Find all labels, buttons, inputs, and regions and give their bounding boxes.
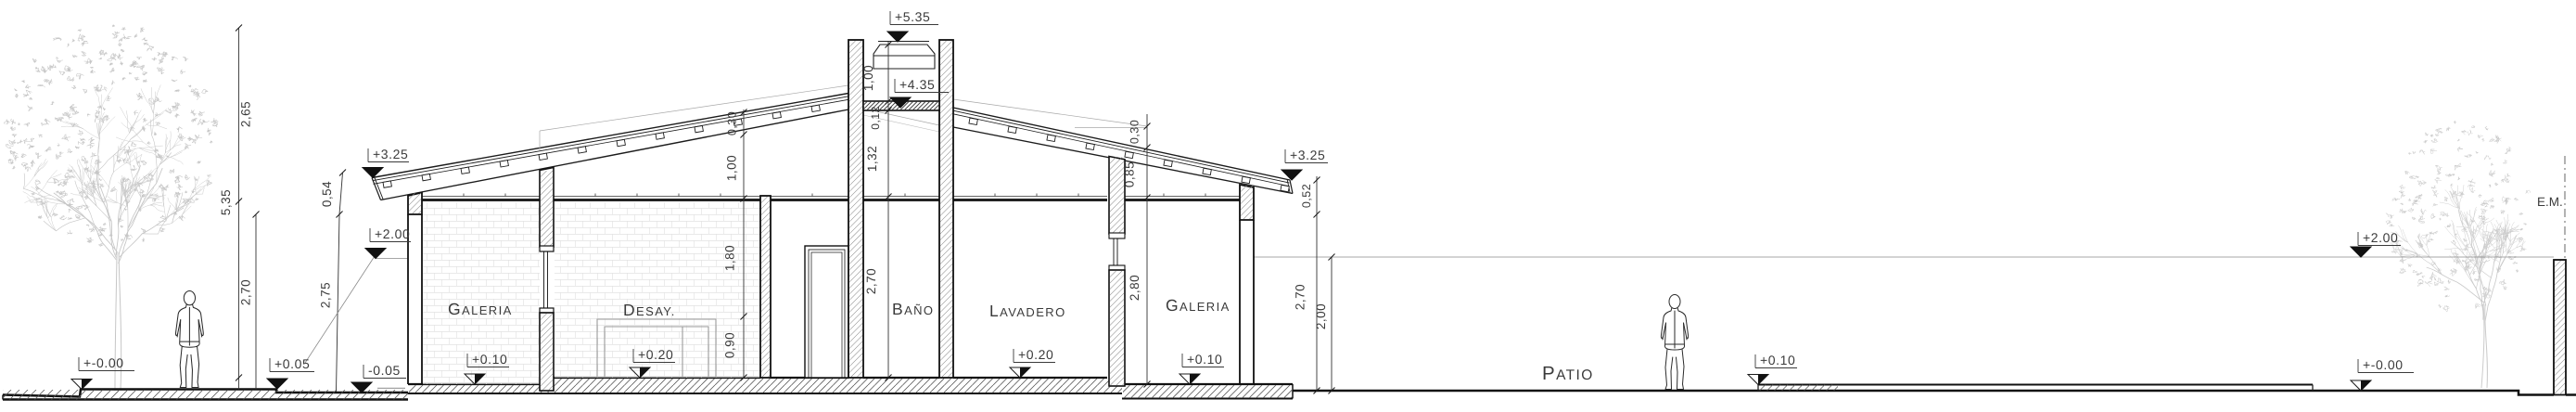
svg-text:2,70: 2,70 (1294, 284, 1307, 310)
svg-text:0,85: 0,85 (1123, 161, 1137, 187)
svg-text:2,75: 2,75 (319, 282, 333, 308)
svg-text:2,80: 2,80 (1128, 275, 1141, 301)
svg-text:+2.00: +2.00 (375, 226, 410, 241)
svg-text:0,30: 0,30 (726, 111, 739, 135)
svg-text:1,32: 1,32 (865, 146, 879, 172)
svg-text:1,80: 1,80 (723, 245, 737, 271)
svg-text:+0.20: +0.20 (638, 347, 673, 362)
svg-text:2,65: 2,65 (239, 101, 253, 127)
svg-text:1,00: 1,00 (861, 65, 875, 91)
svg-text:+4.35: +4.35 (899, 77, 935, 92)
svg-text:0,54: 0,54 (320, 181, 334, 207)
svg-text:+0.20: +0.20 (1018, 347, 1053, 362)
svg-text:0,12: 0,12 (869, 106, 882, 129)
svg-text:+3.25: +3.25 (373, 147, 408, 161)
svg-text:0,52: 0,52 (1300, 184, 1313, 208)
svg-text:+2.00: +2.00 (2363, 230, 2398, 245)
svg-text:2,70: 2,70 (239, 279, 253, 305)
svg-text:2,70: 2,70 (864, 268, 878, 294)
svg-text:E.M.: E.M. (2537, 195, 2563, 209)
svg-text:0,30: 0,30 (1129, 120, 1141, 144)
svg-text:2,00: 2,00 (1314, 303, 1328, 329)
svg-text:-0.05: -0.05 (368, 363, 401, 378)
svg-text:+0.10: +0.10 (472, 352, 507, 367)
svg-text:+0.05: +0.05 (274, 356, 310, 371)
svg-text:+0.10: +0.10 (1187, 352, 1222, 367)
svg-text:+5.35: +5.35 (895, 9, 930, 24)
svg-text:0,90: 0,90 (723, 332, 737, 358)
svg-text:5,35: 5,35 (219, 189, 233, 215)
svg-text:+0.10: +0.10 (1760, 353, 1795, 367)
svg-text:+-0.00: +-0.00 (2363, 357, 2404, 372)
svg-text:1,00: 1,00 (725, 155, 739, 181)
svg-text:+3.25: +3.25 (1290, 148, 1325, 162)
svg-text:+-0.00: +-0.00 (83, 355, 124, 370)
